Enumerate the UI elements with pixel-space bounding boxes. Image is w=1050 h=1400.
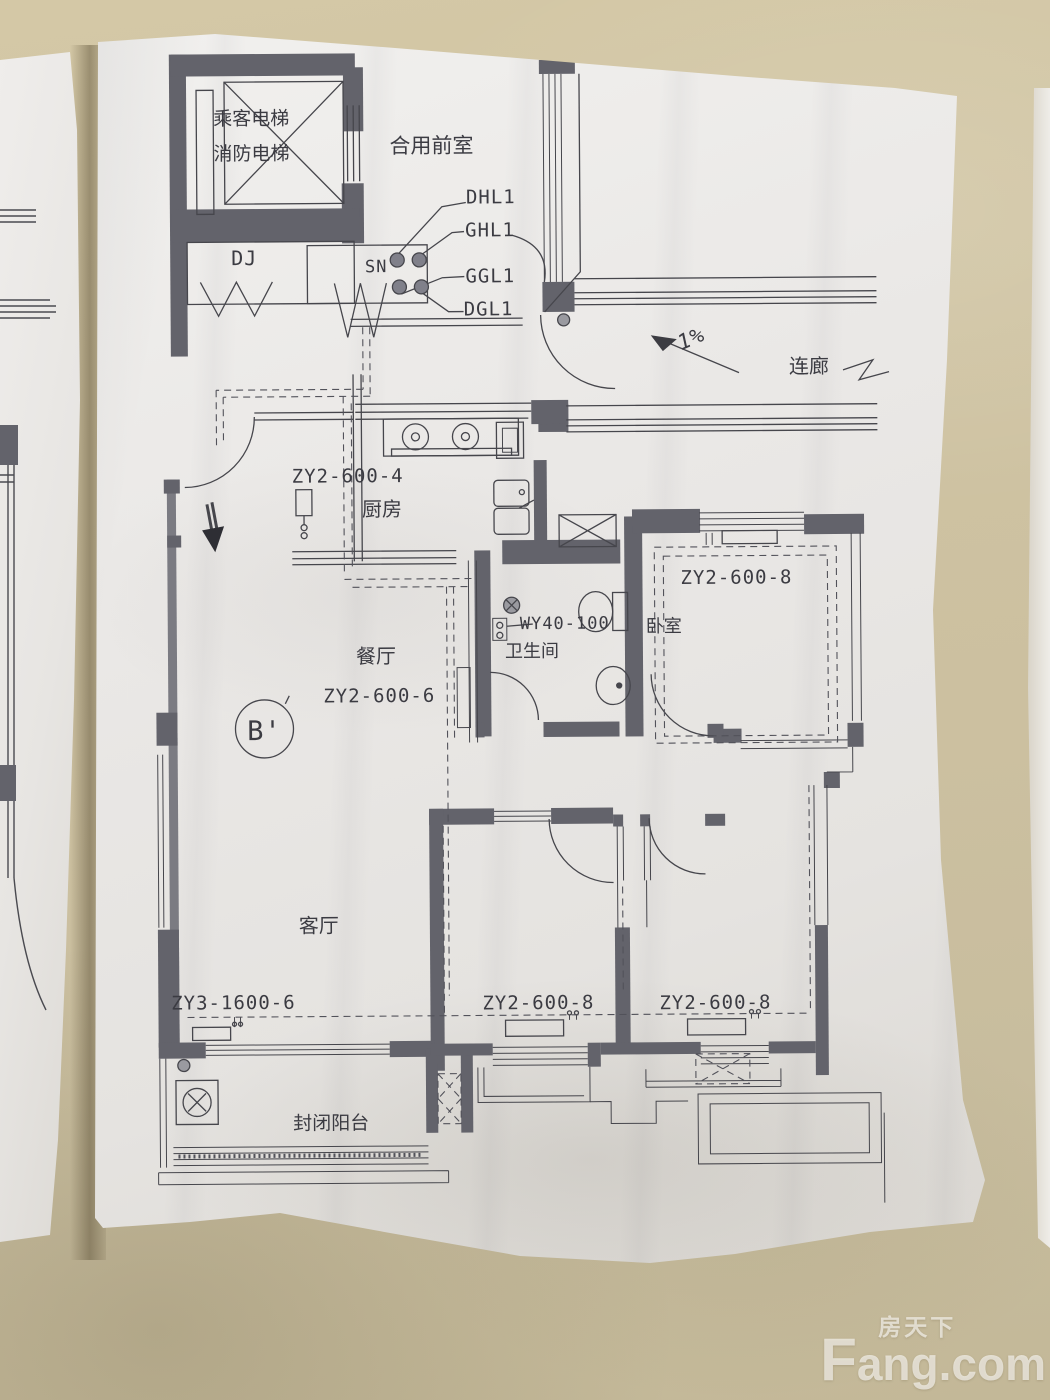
floorplan-drawing: 乘客电梯 消防电梯 合用前室 DJ SN DHL1 GHL1 GGL1 DGL1… (91, 27, 1000, 1288)
entry-arrow (202, 526, 224, 552)
label-dhl1: DHL1 (466, 186, 516, 208)
label-dining: 餐厅 (356, 645, 396, 668)
label-kitchen-code: ZY2-600-4 (292, 465, 404, 488)
label-dining-code: ZY2-600-6 (323, 685, 435, 708)
slope-arrowhead (651, 335, 677, 351)
label-corridor: 连廊 (789, 355, 829, 378)
label-shared-lobby: 合用前室 (389, 134, 473, 158)
walls-layer (152, 50, 869, 1135)
watermark-latin: Fang.com (820, 1330, 1046, 1390)
floor-drain (178, 1059, 190, 1071)
lines-layer (151, 72, 895, 1208)
label-bedroom-left-code: ZY2-600-8 (482, 992, 594, 1015)
label-ggl1: GGL1 (465, 265, 515, 287)
label-living-code: ZY3-1600-6 (171, 992, 296, 1015)
label-riser-sn: SN (365, 257, 388, 277)
stove (383, 418, 518, 456)
label-bedroom-right-code: ZY2-600-8 (659, 991, 771, 1014)
label-elevator-line1: 乘客电梯 (213, 108, 289, 131)
label-bedroom: 卧室 (646, 616, 682, 636)
label-dgl1: DGL1 (464, 298, 514, 320)
label-bathroom-code: WY40-100 (520, 614, 610, 635)
label-kitchen: 厨房 (362, 498, 402, 521)
riser-pipe (390, 253, 404, 267)
label-living: 客厅 (299, 914, 339, 937)
watermark-fang: 房天下 Fang.com (820, 1316, 1046, 1390)
washbasin (596, 666, 630, 704)
sink-basin-2 (494, 508, 529, 534)
right-paper-sliver (1028, 88, 1050, 1248)
label-slope-1pct: 1% (674, 322, 709, 355)
label-elevator-line2: 消防电梯 (213, 143, 289, 166)
label-balcony: 封闭阳台 (293, 1112, 369, 1135)
label-ghl1: GHL1 (465, 219, 515, 241)
labels-layer: 乘客电梯 消防电梯 合用前室 DJ SN DHL1 GHL1 GGL1 DGL1… (165, 104, 834, 1136)
label-dj: DJ (231, 246, 257, 270)
photo-of-floorplan-on-wall: 乘客电梯 消防电梯 合用前室 DJ SN DHL1 GHL1 GGL1 DGL1… (0, 0, 1050, 1400)
main-paper-sheet: 乘客电梯 消防电梯 合用前室 DJ SN DHL1 GHL1 GGL1 DGL1… (95, 30, 995, 1285)
label-section-marker: B' (247, 716, 282, 747)
floor-drain (558, 314, 570, 326)
label-bathroom: 卫生间 (505, 641, 559, 661)
label-bedroom-top-code: ZY2-600-8 (680, 566, 792, 589)
